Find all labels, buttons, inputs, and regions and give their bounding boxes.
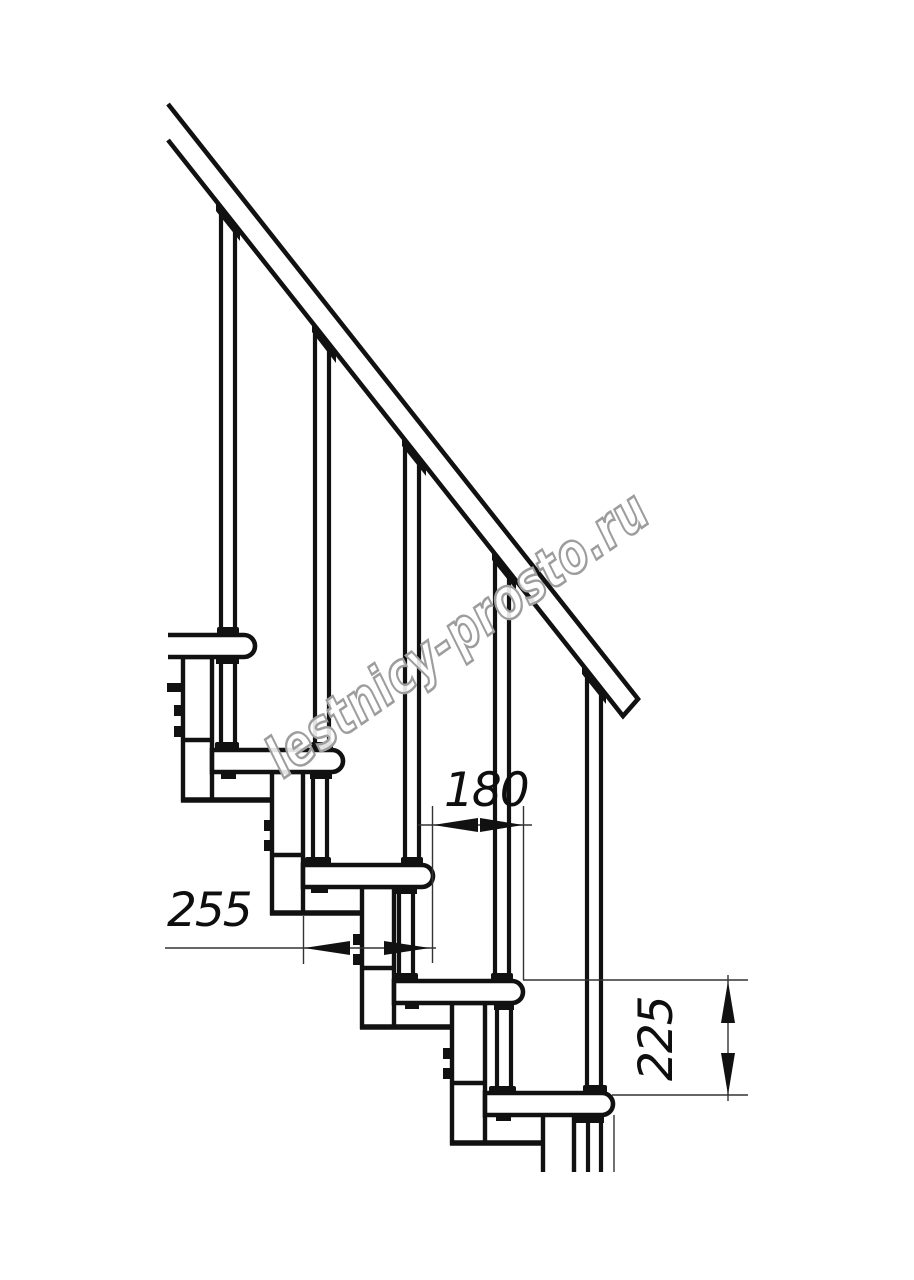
dimension-label-225: 225 xyxy=(629,997,684,1081)
staircase-side-view-diagram: 180 255 225 lestnicy-prosto.ru xyxy=(0,0,914,1280)
module-column xyxy=(362,887,394,1027)
post-top-flange xyxy=(573,1115,604,1123)
tread-bolt xyxy=(311,887,328,893)
module-column xyxy=(183,657,212,800)
module-column xyxy=(452,1003,485,1143)
tread-bolt xyxy=(496,1115,511,1121)
support-post xyxy=(399,887,413,978)
baluster xyxy=(587,670,601,1093)
tread xyxy=(303,865,433,887)
tread-bolt xyxy=(221,772,236,779)
post-bottom-flange xyxy=(392,973,418,982)
baluster xyxy=(221,207,235,635)
tread xyxy=(168,635,255,657)
column-bolt xyxy=(264,840,274,851)
dimension-arrow xyxy=(433,818,478,832)
tread-bolt xyxy=(167,683,183,692)
tread-bolt xyxy=(405,1003,419,1009)
post-bottom-flange xyxy=(489,1086,516,1094)
column-bolt xyxy=(353,954,363,965)
post-top-flange xyxy=(216,657,239,664)
baluster-base-cap xyxy=(491,973,513,982)
support-post xyxy=(313,772,327,862)
staircase-drawing-page: 180 255 225 lestnicy-prosto.ru xyxy=(0,0,914,1280)
column-bolt xyxy=(174,705,184,716)
support-post xyxy=(221,657,235,746)
dimension-225: 225 xyxy=(523,975,748,1172)
column-bolt xyxy=(174,726,184,737)
module-column xyxy=(272,772,303,913)
dimension-arrow xyxy=(304,941,350,955)
dimension-arrow xyxy=(480,818,523,832)
dimension-arrow xyxy=(721,981,735,1023)
dimension-arrow xyxy=(384,941,430,955)
tread xyxy=(394,981,523,1003)
post-top-flange xyxy=(396,887,417,894)
post-top-flange xyxy=(494,1003,514,1010)
dimension-arrow xyxy=(721,1053,735,1095)
column-bolt xyxy=(443,1068,453,1079)
post-bottom-flange xyxy=(305,857,331,866)
column-bolt xyxy=(443,1048,453,1059)
baluster-base-cap xyxy=(217,627,239,636)
support-post xyxy=(497,1003,511,1090)
post-bottom-flange xyxy=(215,742,239,751)
dimension-label-180: 180 xyxy=(444,763,528,818)
column-bolt xyxy=(264,820,274,831)
dimension-label-255: 255 xyxy=(167,883,251,938)
tread xyxy=(485,1093,613,1115)
support-post xyxy=(588,1115,601,1172)
column-bolt xyxy=(353,934,363,945)
baluster-base-cap xyxy=(583,1085,607,1094)
baluster-base-cap xyxy=(401,857,423,866)
